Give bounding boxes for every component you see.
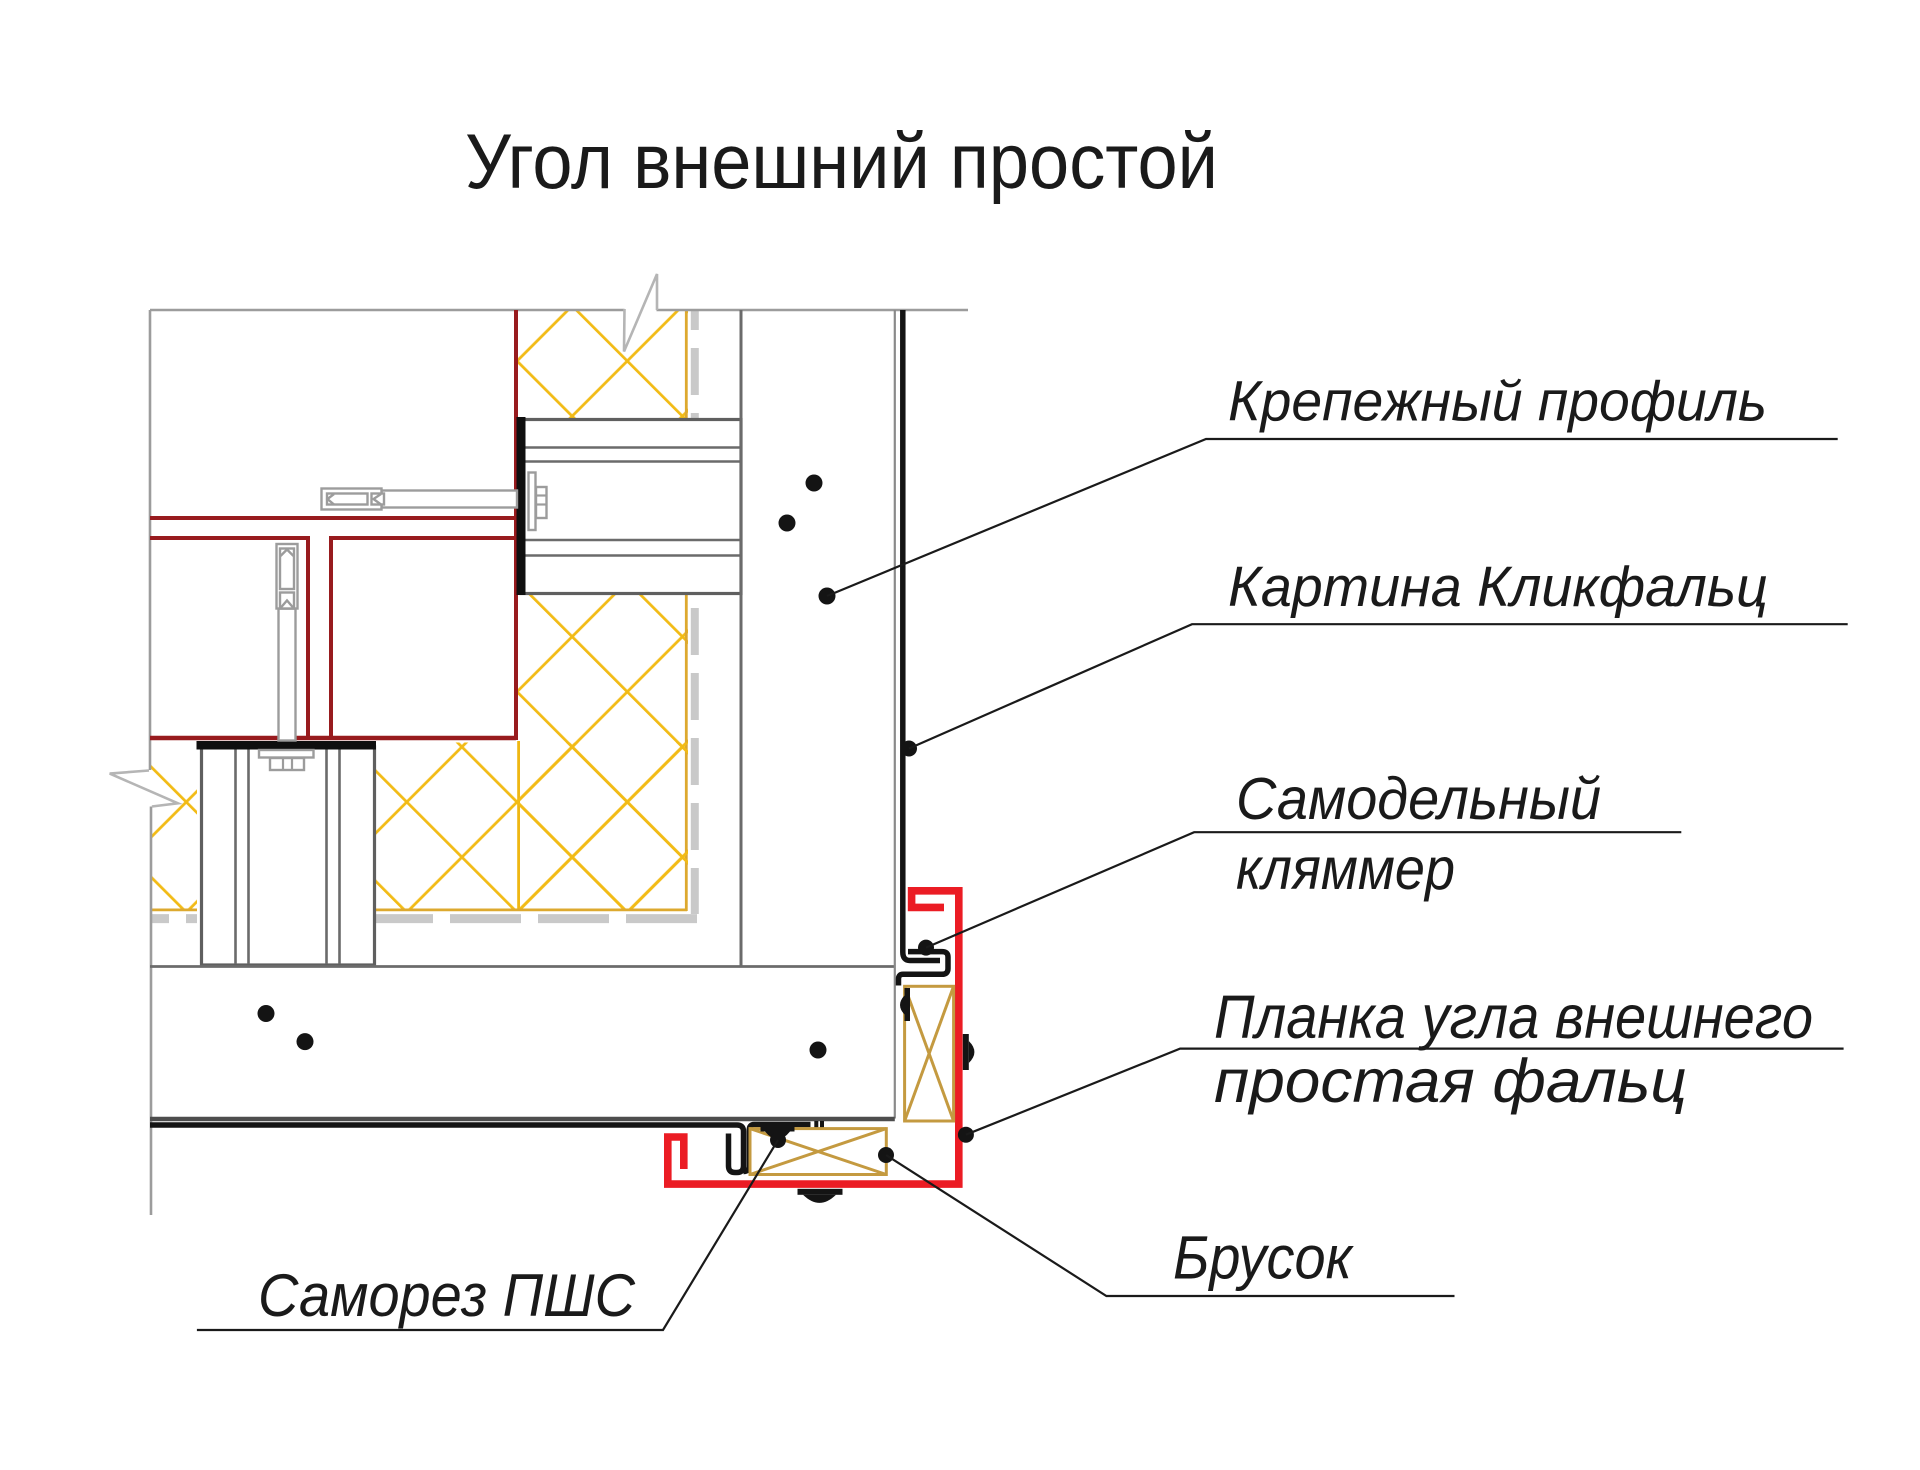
svg-text:Саморез ПШС: Саморез ПШС <box>258 1262 636 1329</box>
svg-text:Самодельный: Самодельный <box>1236 766 1601 832</box>
svg-text:Брусок: Брусок <box>1173 1223 1354 1291</box>
svg-text:простая фальц: простая фальц <box>1214 1047 1687 1115</box>
svg-text:Планка угла внешнего: Планка угла внешнего <box>1214 983 1813 1051</box>
svg-text:Картина Кликфальц: Картина Кликфальц <box>1228 555 1768 619</box>
svg-text:Крепежный профиль: Крепежный профиль <box>1228 370 1767 434</box>
svg-text:кляммер: кляммер <box>1236 836 1455 902</box>
svg-text:Угол внешний простой: Угол внешний простой <box>465 117 1218 205</box>
